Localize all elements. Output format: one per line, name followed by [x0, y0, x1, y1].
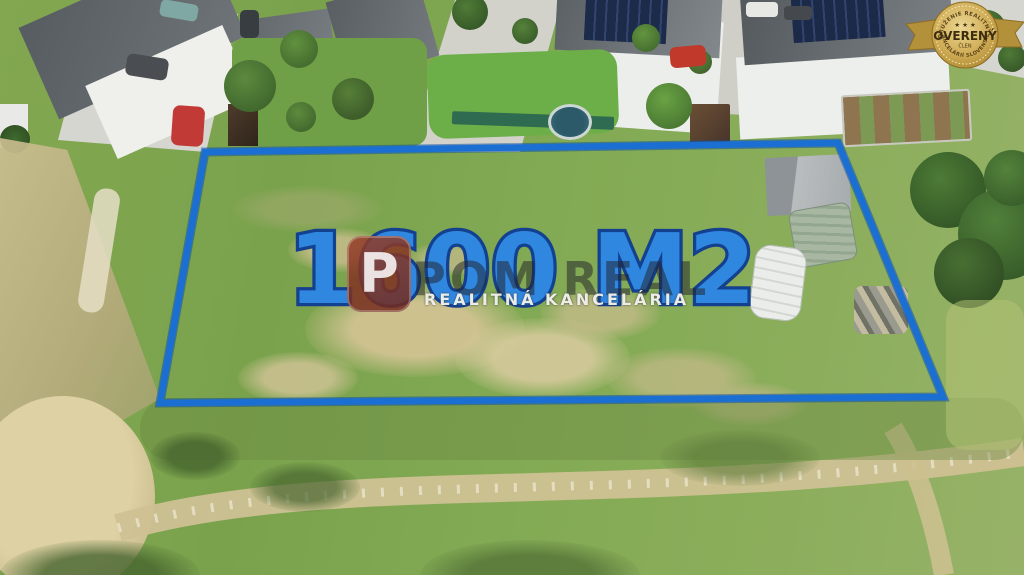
badge-member: ČLEN — [958, 43, 971, 50]
verified-badge: ZDRUŽENIE REALITNÝCH KANCELÁRIÍ SLOVENSK… — [900, 0, 1024, 94]
agency-subtitle: REALITNÁ KANCELÁRIA — [424, 290, 689, 309]
agency-logo-icon: P — [347, 236, 411, 312]
agency-logo-letter: P — [359, 247, 399, 301]
aerial-photo: 1600 M2 P POM REAL REALITNÁ KANCELÁRIA Z… — [0, 0, 1024, 575]
badge-stars: ★ ★ ★ — [954, 21, 976, 29]
badge-title: OVERENÝ — [933, 28, 997, 43]
